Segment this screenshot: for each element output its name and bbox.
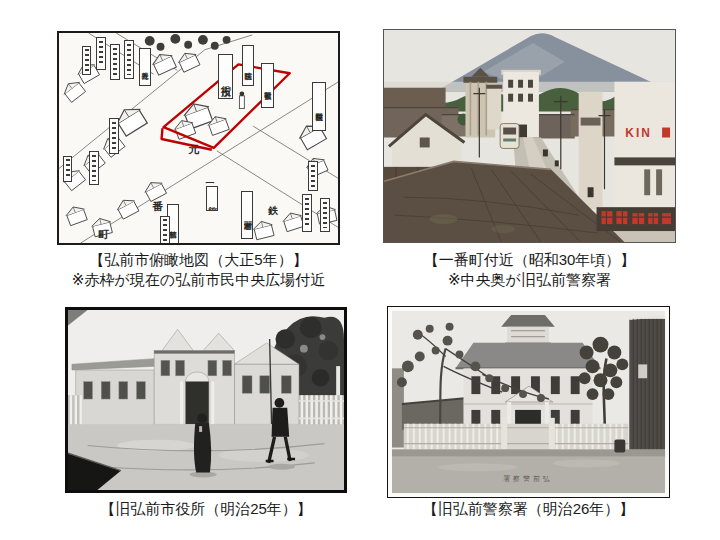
map-label-police-station: 弘前警察署	[261, 63, 274, 108]
street-photo: KIN	[383, 29, 676, 243]
map-label-illegible	[110, 44, 120, 80]
map-label-illegible	[308, 161, 318, 191]
map-watchtower	[239, 91, 244, 108]
map-label-kaiundo: 開運堂木村	[241, 191, 253, 239]
map-label-illegible	[320, 198, 330, 232]
bus	[500, 124, 519, 149]
caption-street-line2: ※中央奥が旧弘前警察署	[375, 270, 684, 290]
map-label-nakano-dental: 中野歯科医院	[312, 82, 326, 131]
right-dark-building	[629, 316, 665, 458]
police-station-illustration: 署察警前弘	[388, 307, 669, 497]
map-label-illegible	[109, 118, 119, 154]
storefront-sign-text: KIN	[625, 126, 651, 140]
map-label-city-hall: 市役所	[218, 54, 233, 99]
map-label-illegible	[160, 216, 170, 244]
police-station-photo: 署察警前弘	[387, 306, 670, 498]
map-label-illegible	[96, 37, 106, 70]
postcard-caption-text: 署察警前弘	[503, 475, 553, 483]
city-hall-illustration	[68, 310, 344, 490]
street-char-tetsu: 鉄	[267, 205, 279, 216]
map-label-bank-59: 五十九銀行	[139, 48, 151, 86]
barrel	[614, 440, 625, 453]
map-label-illegible	[302, 194, 312, 232]
caption-police-line1: 【旧弘前警察署（明治26年）】	[375, 499, 682, 519]
map-image: 元 一 番 町 鉄 市役所 弘前警察署 歯科医院 中野歯科医院 五十九銀行 弘前…	[57, 31, 340, 245]
caption-map-line2: ※赤枠が現在の弘前市民中央広場付近	[45, 270, 352, 290]
map-label-illegible	[82, 46, 91, 75]
map-label-dental-clinic: 歯科医院	[242, 45, 254, 86]
caption-police: 【旧弘前警察署（明治26年）】	[375, 499, 682, 519]
slide-canvas: 元 一 番 町 鉄 市役所 弘前警察署 歯科医院 中野歯科医院 五十九銀行 弘前…	[0, 0, 720, 540]
street-char-moto: 元	[188, 143, 200, 155]
map-label-illegible	[63, 156, 72, 182]
caption-map-line1: 【弘前市俯瞰地図（大正5年）】	[45, 250, 352, 270]
map-label-illegible	[89, 151, 99, 185]
city-hall-photo	[65, 307, 347, 493]
red-neon-sign-marks	[597, 207, 675, 231]
street-photo-illustration: KIN	[384, 30, 675, 242]
caption-city-hall-line1: 【旧弘前市役所（明治25年）】	[53, 499, 359, 519]
caption-city-hall: 【旧弘前市役所（明治25年）】	[53, 499, 359, 519]
street-char-cho: 町	[98, 228, 110, 240]
map-label-ryokan: 旅館	[206, 186, 218, 211]
map-label-illegible	[124, 40, 134, 79]
caption-street: 【一番町付近（昭和30年頃）】 ※中央奥が旧弘前警察署	[375, 250, 684, 290]
caption-map: 【弘前市俯瞰地図（大正5年）】 ※赤枠が現在の弘前市民中央広場付近	[45, 250, 352, 290]
caption-street-line1: 【一番町付近（昭和30年頃）】	[375, 250, 684, 270]
street-char-ban: 番	[151, 200, 163, 212]
